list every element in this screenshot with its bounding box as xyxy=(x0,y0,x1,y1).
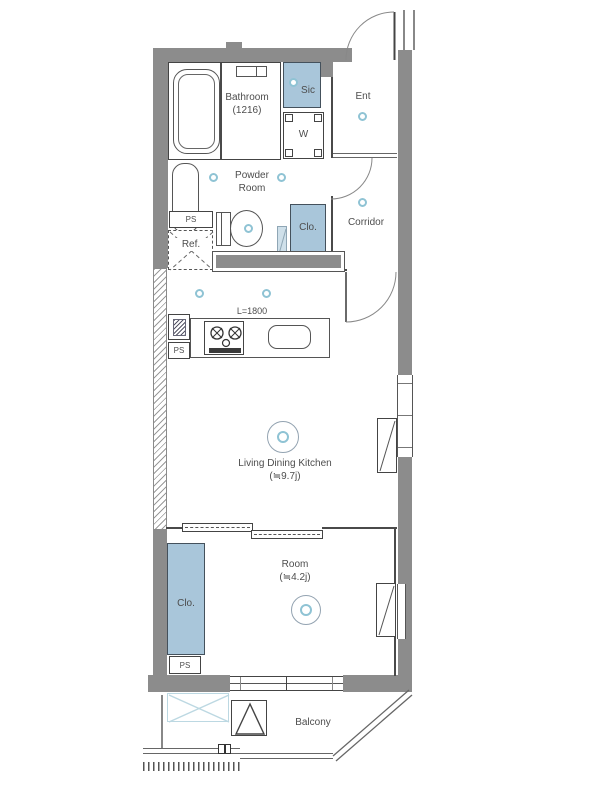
balcony-railing-mid xyxy=(240,753,333,759)
wall-right-upper xyxy=(398,50,412,375)
wall-bottom-right xyxy=(343,675,412,692)
kitchen-back-wall xyxy=(216,255,341,268)
wall-stub-sic-ent xyxy=(320,62,333,77)
room-wall-window xyxy=(397,584,406,639)
room-label-bathroom: Bathroom (1216) xyxy=(202,91,292,117)
balcony-drain-box xyxy=(218,744,231,754)
divider-left-stub xyxy=(166,527,182,529)
exterior-line-1 xyxy=(403,10,405,50)
balcony-edge-hatching xyxy=(143,762,240,771)
exterior-line-2 xyxy=(413,10,415,50)
refrigerator-label: Ref. xyxy=(173,238,209,251)
pipe-shaft-upper: PS xyxy=(169,211,213,228)
room-label-clo-upper: Clo. xyxy=(290,221,326,234)
ldk-ceiling-light-inner xyxy=(277,431,289,443)
light-ent xyxy=(358,112,367,121)
ldk-wall-window xyxy=(397,375,413,457)
ent-partition-line xyxy=(331,77,333,158)
ldk-casement-window xyxy=(377,418,397,473)
wall-left-hatched-shaft xyxy=(153,268,167,530)
kitchen-sink xyxy=(268,325,311,349)
meter-box xyxy=(168,314,190,340)
wall-right-lower xyxy=(398,457,412,690)
balcony-hatch-box xyxy=(231,700,267,736)
counter-length-label: L=1800 xyxy=(212,305,292,318)
balcony-partition-line xyxy=(161,695,163,748)
light-kitchen-1 xyxy=(195,289,204,298)
pipe-shaft-kitchen: PS xyxy=(168,342,190,359)
room-label-sic: Sic xyxy=(296,84,320,97)
ent-step-line-1 xyxy=(333,153,397,154)
room-label-clo-lower: Clo. xyxy=(167,597,205,610)
corridor-door-arc xyxy=(331,158,372,199)
room-label-powder: Powder Room xyxy=(202,169,302,195)
light-toilet xyxy=(244,224,253,233)
refrigerator-space: Ref. xyxy=(168,230,213,270)
light-corridor xyxy=(358,198,367,207)
room-label-room: Room (≒4.2j) xyxy=(245,558,345,584)
evacuation-hatch xyxy=(167,693,229,722)
floorplan-canvas: Bathroom (1216) Sic W Ent Powder Room PS… xyxy=(0,0,600,800)
light-kitchen-2 xyxy=(262,289,271,298)
wall-left-upper xyxy=(153,48,168,268)
room-label-balcony: Balcony xyxy=(278,716,348,729)
bathroom-shelf xyxy=(236,66,267,77)
divider-right-line xyxy=(322,527,397,529)
room-label-ent: Ent xyxy=(338,90,388,103)
room-casement-window xyxy=(376,583,396,637)
stove xyxy=(204,321,244,355)
sliding-door-panel-1 xyxy=(182,523,253,532)
toilet-tank xyxy=(216,212,231,246)
entrance-door-arc xyxy=(346,12,394,60)
room-label-corridor: Corridor xyxy=(331,216,401,229)
room-label-ldk: Living Dining Kitchen (≒9.7j) xyxy=(185,457,385,483)
wall-left-lower xyxy=(153,530,167,678)
ldk-door-arc xyxy=(346,272,396,322)
pipe-shaft-lower: PS xyxy=(169,656,201,674)
meter-icon xyxy=(173,319,186,336)
wall-bottom-left xyxy=(148,675,230,692)
triangle-icon xyxy=(232,701,268,737)
sliding-door-panel-2 xyxy=(251,530,323,539)
refrigerator-x xyxy=(169,231,214,271)
balcony-sliding-window xyxy=(230,676,343,691)
wall-top xyxy=(155,48,352,62)
room-label-washer: W xyxy=(283,128,324,141)
room-ceiling-light-inner xyxy=(300,604,312,616)
ent-step-line-2 xyxy=(333,157,397,158)
evacuation-hatch-x xyxy=(168,694,230,723)
stove-burners xyxy=(205,322,245,356)
wall-top-notch xyxy=(226,42,242,49)
